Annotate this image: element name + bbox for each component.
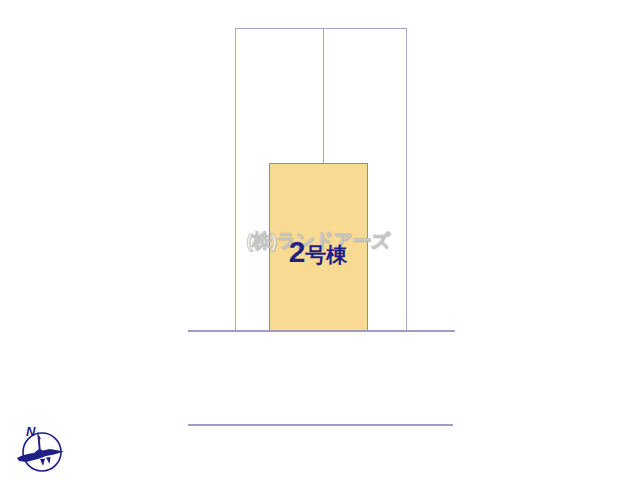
road-edge-line-lower	[188, 424, 453, 426]
building-suffix: 号棟	[305, 244, 347, 265]
parcel-divider-line	[323, 28, 324, 164]
road-edge-line-upper	[188, 330, 455, 332]
bird-tail-icon	[40, 459, 45, 467]
building-label: 2 号棟	[289, 237, 348, 267]
bird-leg-icon	[46, 457, 51, 464]
compass-north-label: N	[26, 424, 36, 439]
compass-north-icon: N	[16, 423, 68, 477]
site-plan-canvas: (株)ランドアーズ 2 号棟 N	[0, 0, 640, 480]
building-number: 2	[289, 237, 306, 267]
